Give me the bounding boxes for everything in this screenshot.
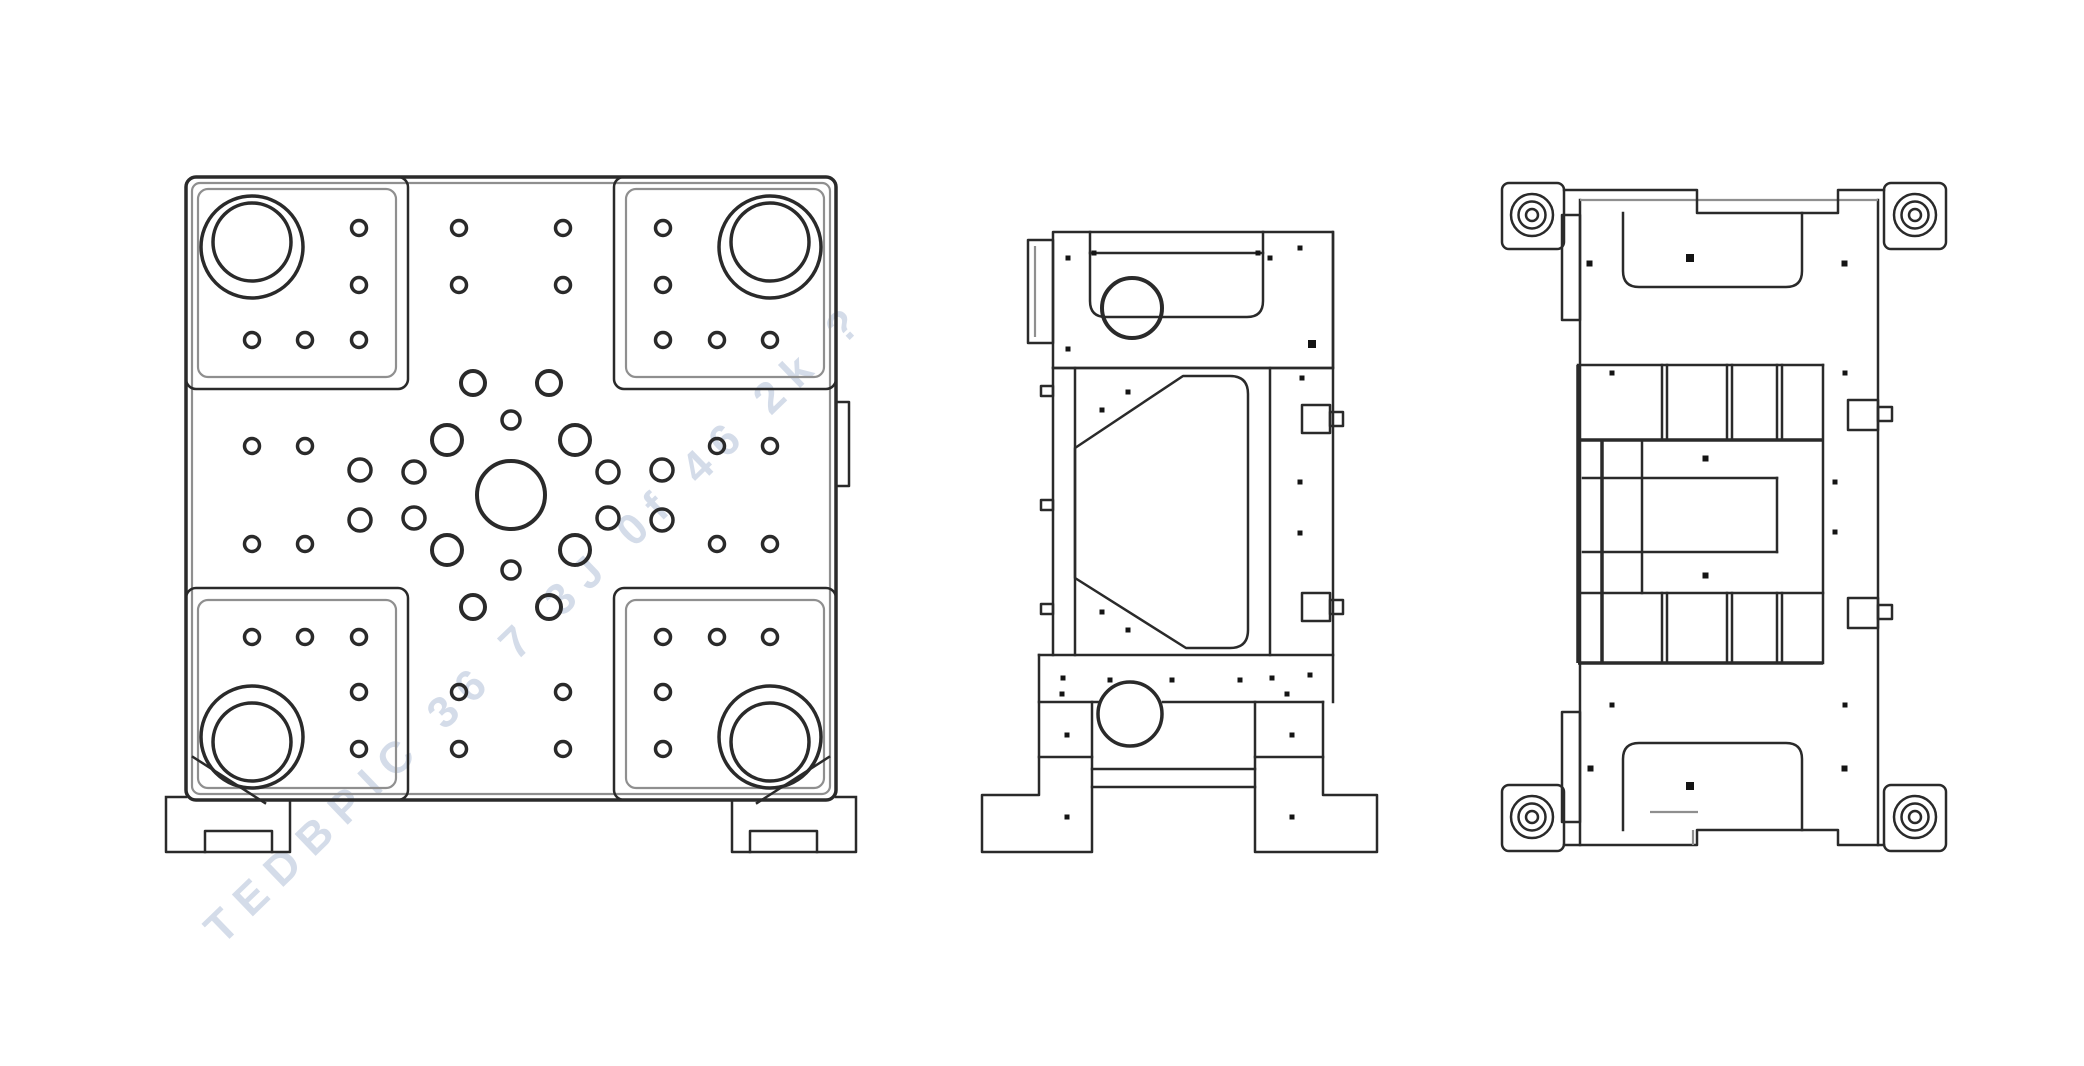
side-left-tab-top xyxy=(1028,240,1053,343)
rear-clamp-slot-upper xyxy=(1848,400,1892,430)
pad-holes-bottom-right xyxy=(656,630,778,757)
side-view xyxy=(982,232,1377,852)
pad-holes-bottom-left xyxy=(245,630,367,757)
locating-ring-hole xyxy=(477,461,545,529)
side-view-drill-marks xyxy=(1060,246,1317,820)
side-left-edge-tabs xyxy=(1041,386,1053,614)
tie-bar-hole-top-left xyxy=(201,196,303,298)
side-base-hole xyxy=(1098,682,1162,746)
front-view xyxy=(166,177,856,852)
tie-bar-boss-bottom-left xyxy=(1502,785,1564,851)
right-arm-holes xyxy=(651,439,778,552)
side-left-leg xyxy=(982,655,1092,852)
pad-holes-top-left xyxy=(245,221,367,348)
center-hole-cluster xyxy=(403,411,619,579)
bottom-column-holes xyxy=(452,595,571,757)
cad-drawing-canvas: TEDBPIC 36 7 3J 0f 46 2k ? xyxy=(0,0,2084,1066)
pad-holes-top-right xyxy=(656,221,778,348)
rear-rib-grid xyxy=(1578,365,1823,663)
corner-pad-bottom-left xyxy=(186,588,408,800)
tie-bar-boss-top-left xyxy=(1502,183,1564,249)
side-top-pocket xyxy=(1090,232,1263,317)
side-clamp-slot-upper xyxy=(1302,405,1343,433)
platen-outline xyxy=(186,177,836,800)
rear-clamp-slot-lower xyxy=(1848,598,1892,628)
corner-pad-bottom-right xyxy=(614,588,836,800)
side-rib-panel xyxy=(1075,376,1248,648)
tie-bar-boss-top-right xyxy=(1884,183,1946,249)
rear-bottom-pocket xyxy=(1623,743,1802,830)
side-right-leg xyxy=(1255,702,1377,852)
tie-bar-boss-bottom-right xyxy=(1884,785,1946,851)
platen-three-view-drawing xyxy=(0,0,2084,1066)
top-column-holes xyxy=(452,221,571,396)
rear-view-drill-marks xyxy=(1587,254,1848,790)
rear-top-pocket xyxy=(1623,213,1802,287)
rear-view xyxy=(1502,183,1946,851)
left-arm-holes xyxy=(245,439,372,552)
tie-bar-hole-top-right xyxy=(719,196,821,298)
side-locating-tab xyxy=(836,402,849,486)
side-head-hole xyxy=(1102,278,1162,338)
side-clamp-slot-lower xyxy=(1302,593,1343,621)
